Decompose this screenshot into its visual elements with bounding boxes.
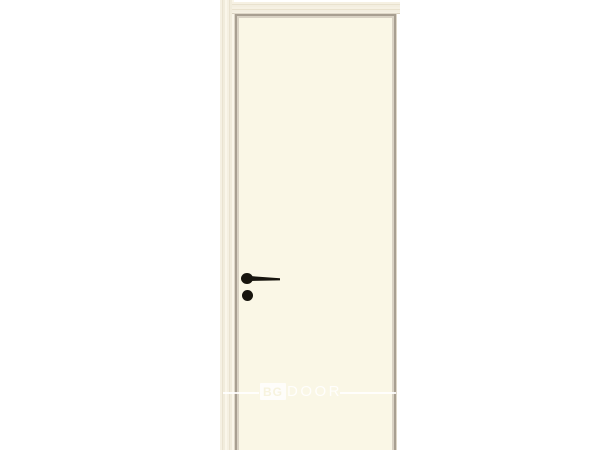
watermark-logo: BG (260, 383, 286, 400)
lock-knob (242, 290, 253, 301)
lever-handle (249, 276, 280, 281)
watermark-line-left (223, 392, 259, 394)
watermark-brand-text: DOOR (287, 382, 342, 401)
watermark: BG DOOR (220, 382, 400, 402)
door: BG DOOR (220, 0, 400, 450)
product-photo: BG DOOR (0, 0, 600, 450)
watermark-line-right (340, 392, 396, 394)
